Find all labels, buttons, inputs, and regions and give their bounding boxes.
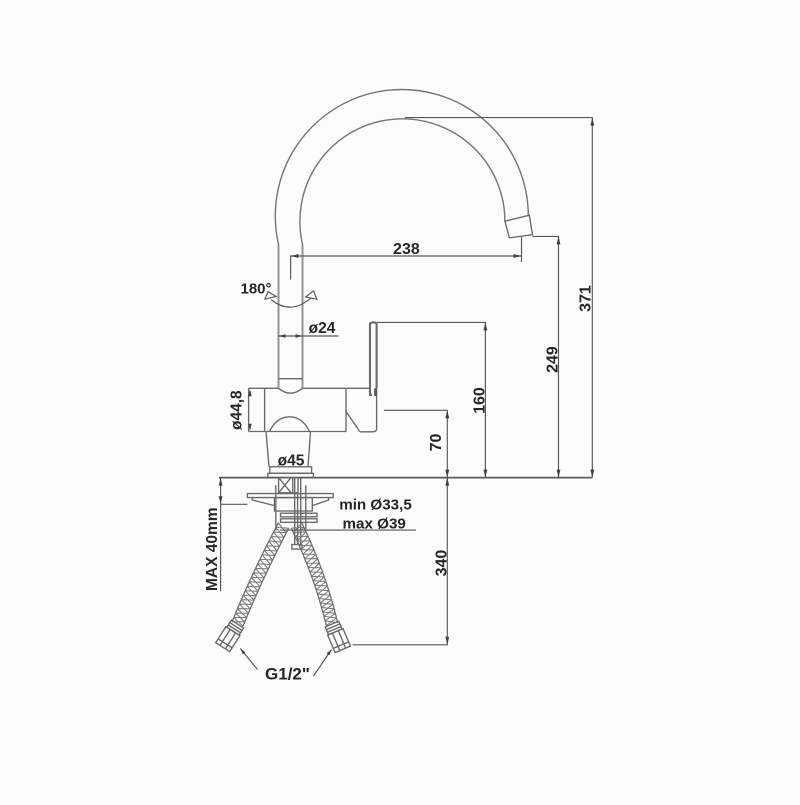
svg-text:238: 238 (393, 241, 420, 258)
svg-text:160: 160 (472, 387, 489, 414)
svg-text:MAX 40mm: MAX 40mm (204, 507, 221, 591)
svg-text:340: 340 (433, 550, 450, 577)
svg-text:ø44,8: ø44,8 (229, 390, 246, 430)
svg-text:G1/2": G1/2" (265, 665, 310, 684)
svg-text:min Ø33,5: min Ø33,5 (339, 497, 412, 514)
svg-text:371: 371 (578, 285, 595, 312)
svg-text:249: 249 (545, 346, 562, 373)
svg-text:ø45: ø45 (278, 453, 305, 470)
svg-text:70: 70 (428, 434, 445, 452)
svg-text:ø24: ø24 (309, 320, 336, 337)
